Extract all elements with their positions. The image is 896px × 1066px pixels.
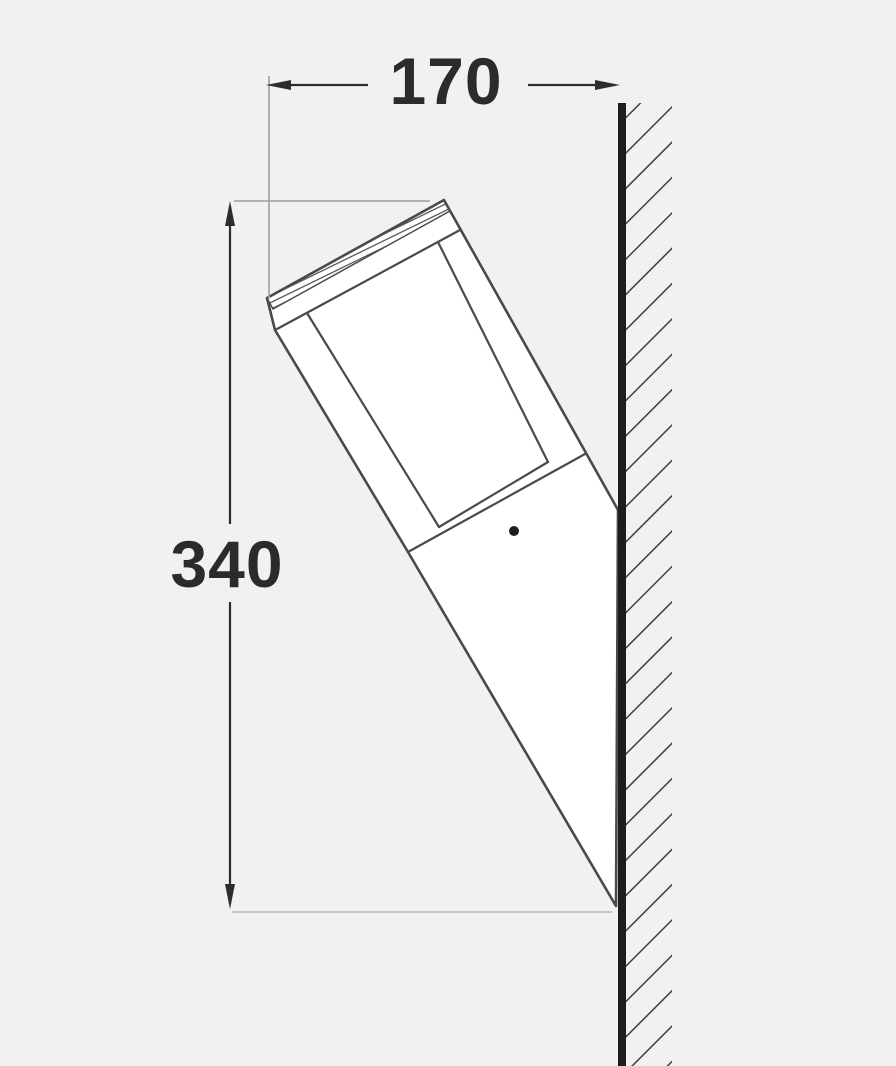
- wall-hatching: [626, 103, 672, 1066]
- dimension-drawing: 170 340: [0, 0, 896, 1066]
- wall-section: [618, 103, 672, 1066]
- wall-line: [618, 103, 626, 1066]
- mounting-screw-dot: [509, 526, 519, 536]
- height-dimension-label: 340: [170, 527, 283, 601]
- drawing-canvas: 170 340: [0, 0, 896, 1066]
- width-dimension-label: 170: [389, 44, 502, 118]
